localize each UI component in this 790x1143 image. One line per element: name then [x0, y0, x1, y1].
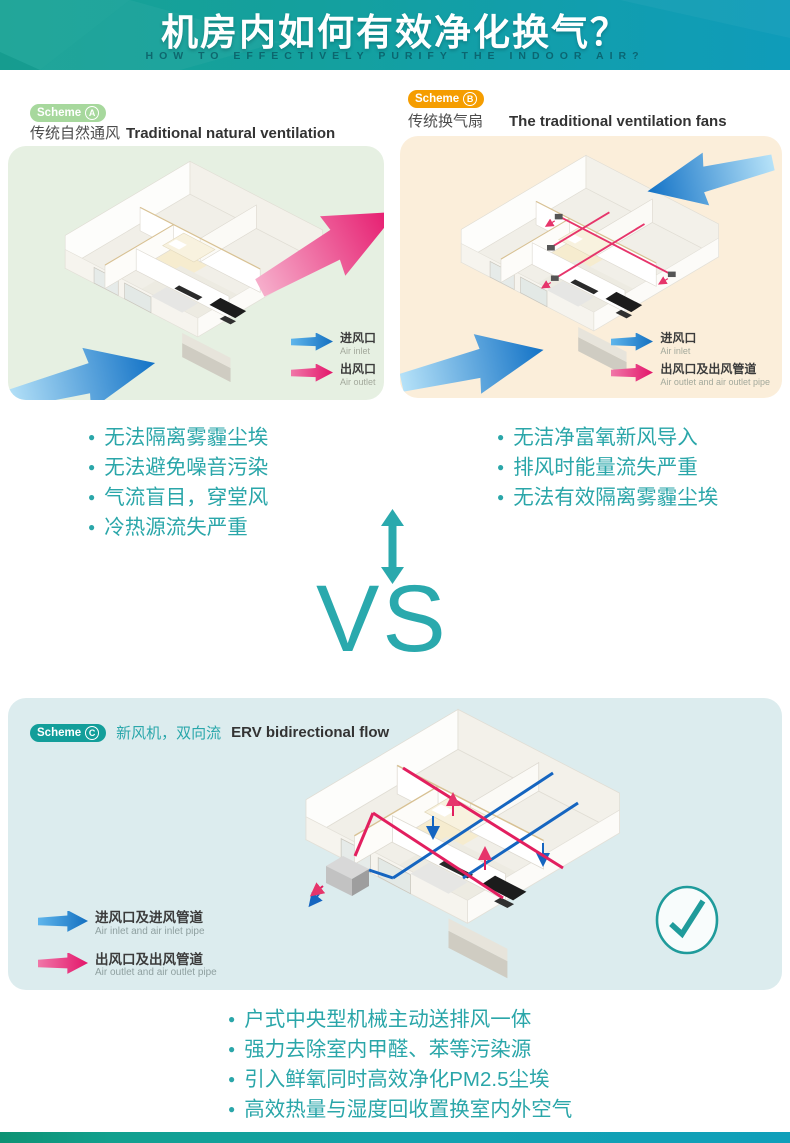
scheme-c-badge: Scheme C — [30, 724, 106, 742]
air-inlet-arrow-icon — [400, 321, 550, 398]
scheme-c-title-zh: 新风机，双向流 — [116, 722, 221, 743]
legend-row: 进风口 Air inlet — [611, 332, 770, 357]
vs-label: VS — [316, 572, 449, 667]
list-item: 无法避免噪音污染 — [88, 454, 268, 484]
air-inlet-arrow-icon — [8, 333, 162, 400]
legend-row: 出风口 Air outlet — [291, 363, 376, 388]
header: 机房内如何有效净化换气？ HOW TO EFFECTIVELY PURIFY T… — [0, 0, 790, 70]
scheme-a-title-en: Traditional natural ventilation — [126, 125, 335, 142]
scheme-a-panel: 进风口 Air inlet 出风口 Air outlet — [8, 146, 384, 400]
scheme-a-title-zh: 传统自然通风 — [30, 125, 120, 142]
list-item: 高效热量与湿度回收置换室内外空气 — [228, 1096, 572, 1126]
legend-row: 出风口及出风管道 Air outlet and air outlet pipe — [611, 363, 770, 388]
air-outlet-arrow-icon — [611, 364, 653, 382]
scheme-c-pros-list: 户式中央型机械主动送排风一体 强力去除室内甲醛、苯等污染源 引入鲜氧同时高效净化… — [228, 1006, 572, 1126]
list-item: 引入鲜氧同时高效净化PM2.5尘埃 — [228, 1066, 572, 1096]
scheme-a-badge: Scheme A — [30, 104, 106, 122]
scheme-b-badge-text: Scheme — [415, 93, 459, 105]
legend-label-zh: 出风口 — [340, 363, 376, 377]
legend-label-zh: 出风口及出风管道 — [95, 952, 217, 968]
scheme-b-legend: 进风口 Air inlet 出风口及出风管道 Air outlet and ai… — [611, 325, 770, 388]
scheme-b-title-zh: 传统换气扇 — [408, 113, 483, 130]
scheme-c-badge-text: Scheme — [37, 727, 81, 739]
list-item: 冷热源流失严重 — [88, 514, 268, 544]
legend-label-en: Air inlet and air inlet pipe — [95, 926, 205, 938]
list-item: 排风时能量流失严重 — [497, 454, 718, 484]
legend-row: 进风口及进风管道 Air inlet and air inlet pipe — [38, 910, 217, 938]
list-item: 户式中央型机械主动送排风一体 — [228, 1006, 572, 1036]
list-item: 气流盲目，穿堂风 — [88, 484, 268, 514]
legend-row: 出风口及出风管道 Air outlet and air outlet pipe — [38, 952, 217, 980]
list-item: 强力去除室内甲醛、苯等污染源 — [228, 1036, 572, 1066]
scheme-c-panel: Scheme C 新风机，双向流 ERV bidirectional flow — [8, 698, 782, 990]
scheme-b-cons-list: 无洁净富氧新风导入 排风时能量流失严重 无法有效隔离雾霾尘埃 — [497, 424, 718, 514]
footer-bar — [0, 1132, 790, 1143]
air-outlet-arrow-icon — [291, 364, 333, 382]
scheme-c-house-illustration — [223, 698, 693, 990]
air-outlet-arrow-icon — [38, 953, 88, 974]
legend-label-en: Air outlet and air outlet pipe — [95, 967, 217, 979]
legend-label-en: Air outlet and air outlet pipe — [660, 377, 770, 388]
scheme-b-title: 传统换气扇The traditional ventilation fans — [408, 110, 727, 131]
air-inlet-arrow-icon — [38, 911, 88, 932]
scheme-b-badge-letter: B — [463, 92, 477, 106]
air-inlet-arrow-icon — [611, 333, 653, 351]
scheme-b-panel: 进风口 Air inlet 出风口及出风管道 Air outlet and ai… — [400, 136, 782, 398]
page-subtitle: HOW TO EFFECTIVELY PURIFY THE INDOOR AIR… — [0, 50, 790, 62]
scheme-c-badge-letter: C — [85, 726, 99, 740]
list-item: 无洁净富氧新风导入 — [497, 424, 718, 454]
scheme-a-badge-text: Scheme — [37, 107, 81, 119]
legend-label-en: Air inlet — [340, 346, 376, 357]
page-title: 机房内如何有效净化换气？ — [0, 2, 790, 56]
legend-label-en: Air inlet — [660, 346, 696, 357]
infographic-page: 机房内如何有效净化换气？ HOW TO EFFECTIVELY PURIFY T… — [0, 0, 790, 1143]
scheme-a-cons-list: 无法隔离雾霾尘埃 无法避免噪音污染 气流盲目，穿堂风 冷热源流失严重 — [88, 424, 268, 544]
legend-row: 进风口 Air inlet — [291, 332, 376, 357]
legend-label-zh: 进风口 — [660, 332, 696, 346]
scheme-c-legend: 进风口及进风管道 Air inlet and air inlet pipe 出风… — [38, 896, 217, 979]
air-inlet-arrow-icon — [291, 333, 333, 351]
scheme-a-badge-letter: A — [85, 106, 99, 120]
scheme-b-badge: Scheme B — [408, 90, 484, 108]
scheme-a-legend: 进风口 Air inlet 出风口 Air outlet — [291, 325, 376, 388]
check-icon — [653, 884, 721, 956]
legend-label-zh: 进风口 — [340, 332, 376, 346]
legend-label-zh: 进风口及进风管道 — [95, 910, 205, 926]
list-item: 无法隔离雾霾尘埃 — [88, 424, 268, 454]
list-item: 无法有效隔离雾霾尘埃 — [497, 484, 718, 514]
legend-label-en: Air outlet — [340, 377, 376, 388]
legend-label-zh: 出风口及出风管道 — [660, 363, 770, 377]
scheme-a-title: 传统自然通风Traditional natural ventilation — [30, 122, 335, 143]
scheme-b-title-en: The traditional ventilation fans — [509, 113, 727, 130]
